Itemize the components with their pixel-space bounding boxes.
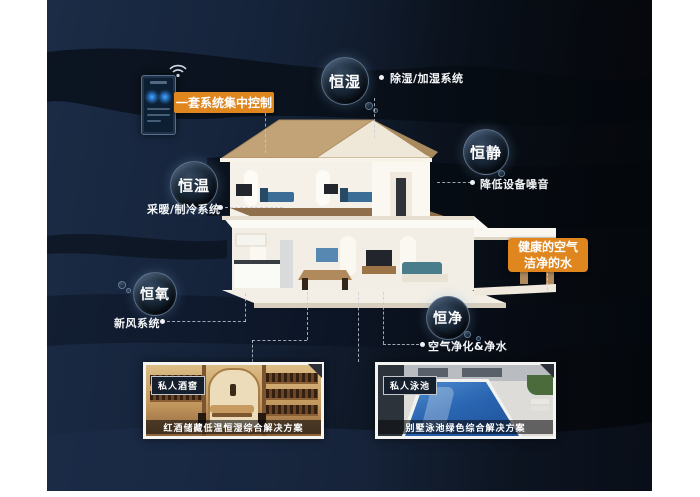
connector-dot xyxy=(160,319,165,324)
panel-row xyxy=(147,120,161,122)
smart-control-panel xyxy=(141,75,176,135)
wine-cellar-badge: 私人酒窖 xyxy=(151,376,205,395)
bubble-quiet-label: 恒静 xyxy=(470,142,502,163)
connector-oxygen-line xyxy=(167,321,246,322)
pool-greenery xyxy=(527,375,553,395)
wine-table xyxy=(210,405,254,413)
poster-stage: 一套系统集中控制 恒湿 除湿/加湿系统 恒静 降低设备噪音 恒温 采暖/制冷系统… xyxy=(0,0,700,497)
wine-shelf xyxy=(266,405,318,416)
wine-cellar-photo: 私人酒窖 红酒储藏低温恒湿综合解决方案 xyxy=(143,362,324,439)
connector-temperature-line xyxy=(225,207,283,208)
panel-header-bar xyxy=(150,81,167,84)
decor-bubble xyxy=(365,102,373,110)
decor-bubble xyxy=(118,281,126,289)
connector-pool-drop xyxy=(358,292,359,362)
connector-dot xyxy=(218,205,223,210)
panel-dial-icon xyxy=(160,92,170,102)
panel-row xyxy=(147,114,170,116)
photo-corner-ribbon xyxy=(540,364,554,378)
wine-vase xyxy=(230,384,236,396)
pool-badge: 私人泳池 xyxy=(383,376,437,395)
control-panel-screen xyxy=(144,78,173,132)
connector-wine-line xyxy=(252,340,307,341)
panel-row xyxy=(147,108,170,110)
connector-wine-drop xyxy=(252,340,253,362)
healthy-air-water-tag: 健康的空气 洁净的水 xyxy=(508,238,588,272)
system-label-quiet: 降低设备噪音 xyxy=(480,176,549,192)
central-control-tag: 一套系统集中控制 xyxy=(174,92,274,113)
connector-control-to-house xyxy=(265,113,266,153)
highlight-line2: 洁净的水 xyxy=(524,255,572,271)
wine-cellar-caption: 红酒储藏低温恒湿综合解决方案 xyxy=(146,420,321,434)
system-label-oxygen: 新风系统 xyxy=(114,315,160,331)
pool-lounge-chairs xyxy=(531,399,549,404)
connector-purity-line xyxy=(383,344,419,345)
bubble-oxygen: 恒氧 xyxy=(133,272,177,316)
photo-corner-ribbon xyxy=(308,364,322,378)
bubble-humidity-label: 恒湿 xyxy=(329,71,361,92)
connector-wine-riser xyxy=(307,292,308,340)
decor-bubble xyxy=(126,288,131,293)
pool-photo: 私人泳池 别墅泳池绿色综合解决方案 xyxy=(375,362,556,439)
connector-dot xyxy=(470,180,475,185)
system-label-humidity: 除湿/加湿系统 xyxy=(390,70,464,86)
connector-quiet-line xyxy=(437,182,471,183)
connector-highlight xyxy=(547,273,548,290)
wine-shelf xyxy=(266,389,318,400)
pool-caption: 别墅泳池绿色综合解决方案 xyxy=(378,420,553,434)
central-control-label: 一套系统集中控制 xyxy=(176,94,272,111)
bubble-purity-label: 恒净 xyxy=(433,308,463,328)
connector-humidity-to-house xyxy=(374,98,375,138)
bubble-oxygen-label: 恒氧 xyxy=(140,284,170,304)
connector-oxygen-riser xyxy=(245,293,246,322)
connector-dot xyxy=(379,75,384,80)
panel-dial-icon xyxy=(147,92,157,102)
decor-bubble xyxy=(464,331,471,338)
connector-purity-riser xyxy=(383,292,384,344)
pool-cabana xyxy=(462,368,502,377)
system-label-purity: 空气净化&净水 xyxy=(428,338,507,354)
bubble-humidity: 恒湿 xyxy=(321,57,369,105)
connector-dot xyxy=(420,342,425,347)
house-illustration xyxy=(220,110,560,315)
bubble-quiet: 恒静 xyxy=(463,129,509,175)
system-label-temperature: 采暖/制冷系统 xyxy=(147,201,221,217)
highlight-line1: 健康的空气 xyxy=(518,239,578,255)
bubble-temperature-label: 恒温 xyxy=(178,175,210,196)
wifi-icon xyxy=(167,61,189,79)
